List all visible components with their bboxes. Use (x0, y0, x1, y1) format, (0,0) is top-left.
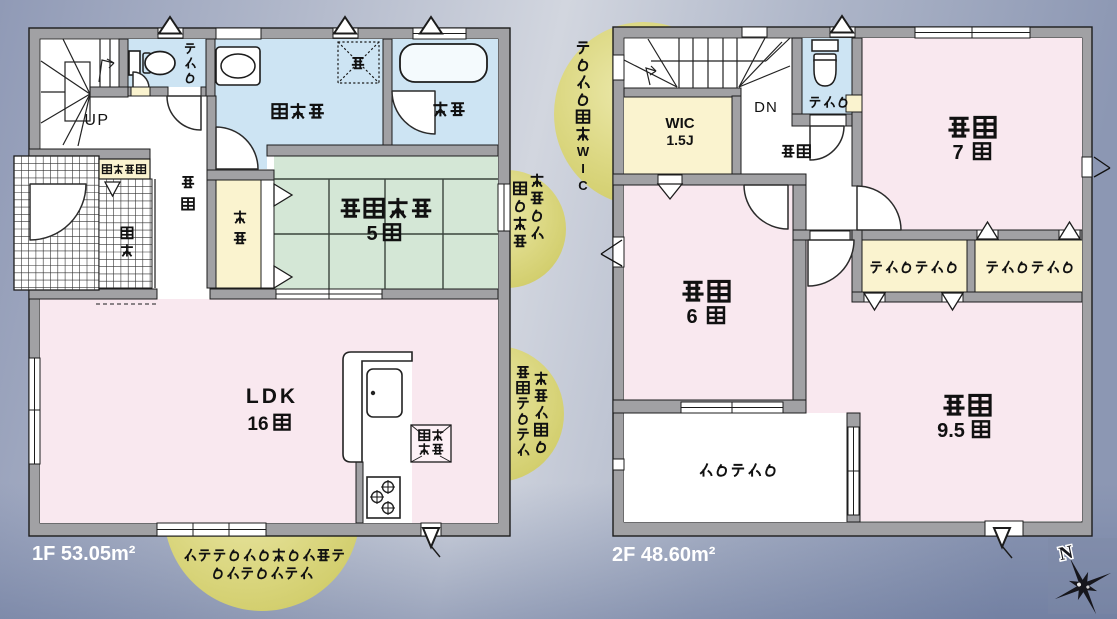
svg-text:I: I (581, 161, 585, 176)
svg-text:W: W (577, 144, 590, 159)
svg-text:WIC: WIC (665, 115, 694, 132)
svg-text:16: 16 (247, 414, 268, 435)
svg-text:2F 48.60m²: 2F 48.60m² (612, 544, 716, 566)
svg-text:1F 53.05m²: 1F 53.05m² (32, 543, 136, 565)
svg-text:5: 5 (366, 223, 377, 245)
svg-text:9.5: 9.5 (937, 420, 965, 442)
svg-text:UP: UP (84, 112, 109, 129)
svg-text:DN: DN (754, 99, 778, 116)
svg-text:7: 7 (952, 142, 963, 164)
svg-text:6: 6 (686, 306, 697, 328)
svg-text:LDK: LDK (246, 385, 298, 408)
svg-text:1.5J: 1.5J (666, 132, 693, 148)
svg-text:C: C (578, 178, 588, 193)
